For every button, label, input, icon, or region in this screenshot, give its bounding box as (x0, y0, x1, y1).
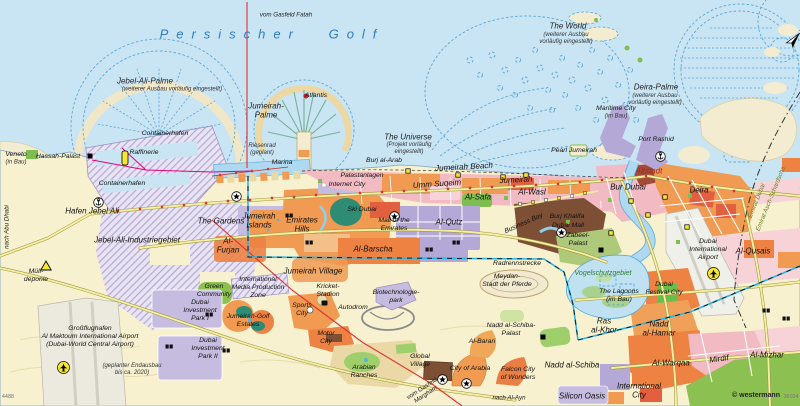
al-maktoum-airport-zone (38, 298, 126, 406)
jumeirah-village-zone (292, 258, 348, 282)
map-svg (0, 0, 800, 406)
atlas-map-dubai: N Persischer Golfvom Gasfeld FatahJebel-… (0, 0, 800, 406)
global-village-zone (424, 361, 453, 380)
safa-park-zone (462, 194, 492, 207)
investment-park-2-zone (158, 336, 222, 380)
silicon-oasis-zone (558, 386, 608, 404)
pearl-jumeirah-island (570, 145, 587, 156)
